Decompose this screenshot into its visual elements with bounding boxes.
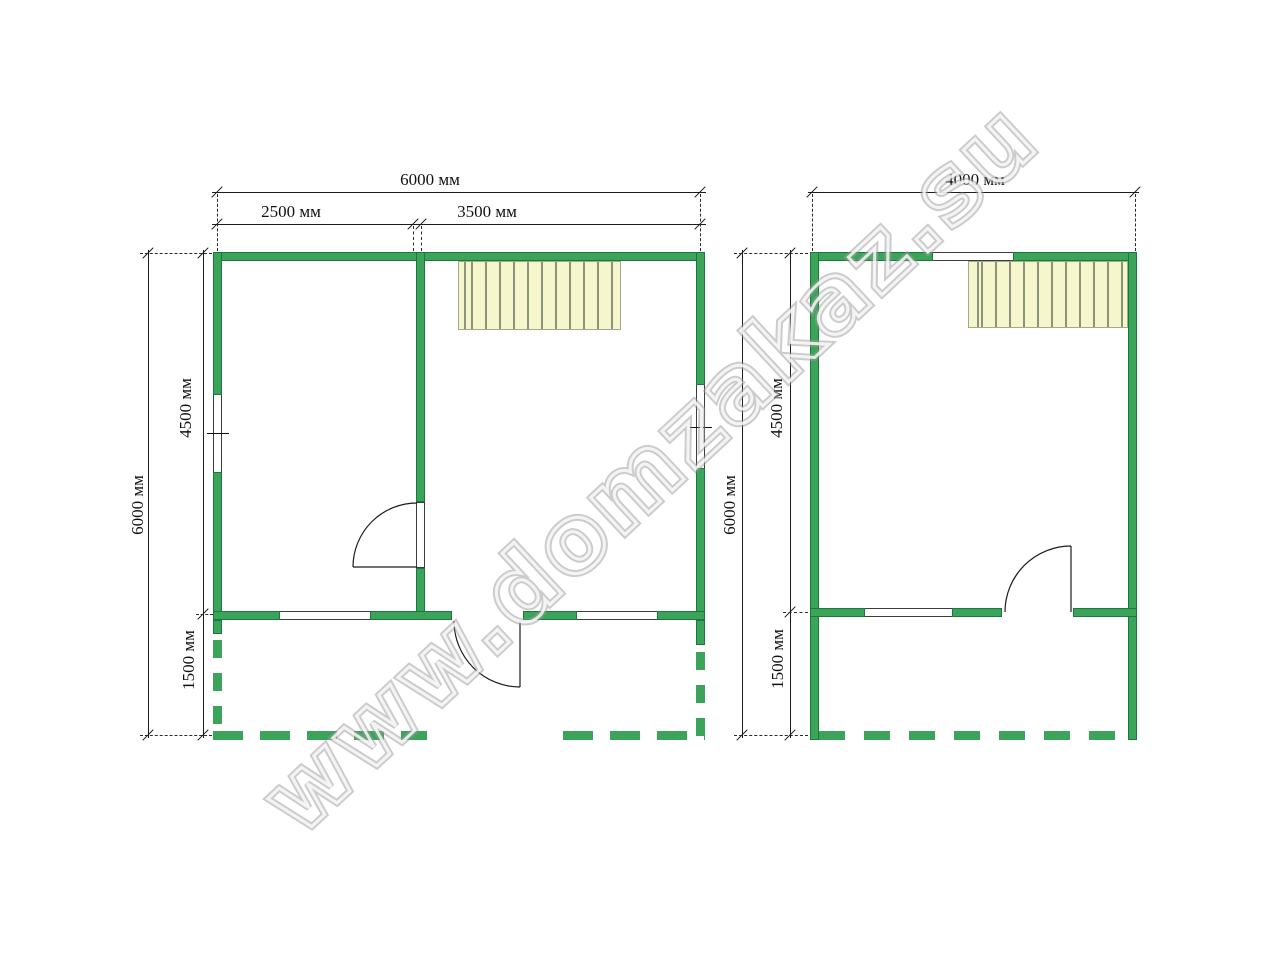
plan2-stairs xyxy=(968,261,1128,328)
plan1-dim-line-total-height xyxy=(148,250,149,738)
plan2-divider-wall-seg3 xyxy=(1073,608,1137,617)
door-arc xyxy=(1005,546,1071,612)
plan1-stairs xyxy=(458,261,621,330)
plan1-terrace-door-swing xyxy=(450,617,524,691)
plan2-main-depth-label: 4500 мм xyxy=(767,378,787,438)
window-center-tick xyxy=(207,433,229,434)
plan2-porch-bottom-dashed xyxy=(819,731,1128,740)
plan2-dim-line-total-width xyxy=(808,192,1139,193)
plan1-terrace-right-stub xyxy=(696,620,705,645)
plan2-total-height-label: 6000 мм xyxy=(720,475,740,535)
plan2-total-width-label: 4000 мм xyxy=(945,170,1005,190)
extension-line xyxy=(783,612,808,613)
plan2-top-wall-left xyxy=(810,252,933,261)
plan1-dim-line-rooms xyxy=(212,224,706,225)
plan1-interior-wall-upper xyxy=(416,252,425,502)
plan1-divider-window-left xyxy=(280,611,370,620)
plan2-divider-wall-seg2 xyxy=(952,608,1002,617)
plan2-dim-line-depths xyxy=(790,250,791,738)
plan1-top-wall xyxy=(213,252,705,261)
plan2-dim-line-total-height xyxy=(742,250,743,738)
plan1-interior-door-swing xyxy=(350,501,420,571)
plan1-terrace-left-dashed xyxy=(213,640,222,740)
plan2-door-swing xyxy=(1001,542,1075,616)
plan1-divider-wall-seg1 xyxy=(213,611,280,620)
extension-line xyxy=(700,194,701,251)
plan1-total-width-label: 6000 мм xyxy=(400,170,460,190)
plan1-terrace-right-dashed xyxy=(696,652,705,740)
plan1-divider-wall-seg2 xyxy=(370,611,452,620)
plan1-divider-wall-seg3 xyxy=(523,611,577,620)
plan1-left-wall-upper xyxy=(213,252,222,395)
extension-line xyxy=(140,735,212,736)
plan1-terrace-left-stub xyxy=(213,620,222,634)
plan1-divider-window-right xyxy=(577,611,657,620)
plan2-top-wall-right xyxy=(1013,252,1137,261)
extension-line xyxy=(734,735,808,736)
plan1-divider-wall-seg4 xyxy=(657,611,705,620)
plan2-divider-wall-seg1 xyxy=(810,608,865,617)
extension-line xyxy=(734,253,808,254)
plan1-main-depth-label: 4500 мм xyxy=(176,378,196,438)
door-arc xyxy=(454,621,520,687)
plan1-terrace-bottom-dashed-right xyxy=(563,731,705,740)
plan1-dim-line-total-width xyxy=(212,192,706,193)
window-center-tick xyxy=(690,427,712,428)
floor-plan-drawing: 6000 мм 2500 мм 3500 мм 6000 мм 4500 мм … xyxy=(0,0,1280,960)
plan1-right-wall-upper xyxy=(696,252,705,385)
plan1-right-wall-lower xyxy=(696,468,705,620)
plan2-left-wall xyxy=(810,252,819,740)
plan2-porch-depth-label: 1500 мм xyxy=(768,629,788,689)
plan1-terrace-bottom-dashed-left xyxy=(213,731,427,740)
plan1-terrace-depth-label: 1500 мм xyxy=(179,630,199,690)
plan1-left-wall-lower xyxy=(213,472,222,620)
extension-line xyxy=(196,614,213,615)
extension-line xyxy=(1135,194,1136,251)
plan1-left-room-width-label: 2500 мм xyxy=(261,202,321,222)
extension-line xyxy=(421,226,422,251)
door-arc xyxy=(353,503,417,567)
extension-line xyxy=(413,226,414,251)
extension-line xyxy=(812,194,813,251)
plan2-divider-window xyxy=(865,608,952,617)
plan2-top-window xyxy=(933,252,1013,261)
plan1-dim-line-depths xyxy=(203,250,204,738)
plan1-total-height-label: 6000 мм xyxy=(128,475,148,535)
plan2-right-wall xyxy=(1128,252,1137,740)
extension-line xyxy=(140,253,212,254)
plan1-right-room-width-label: 3500 мм xyxy=(457,202,517,222)
extension-line xyxy=(217,194,218,251)
